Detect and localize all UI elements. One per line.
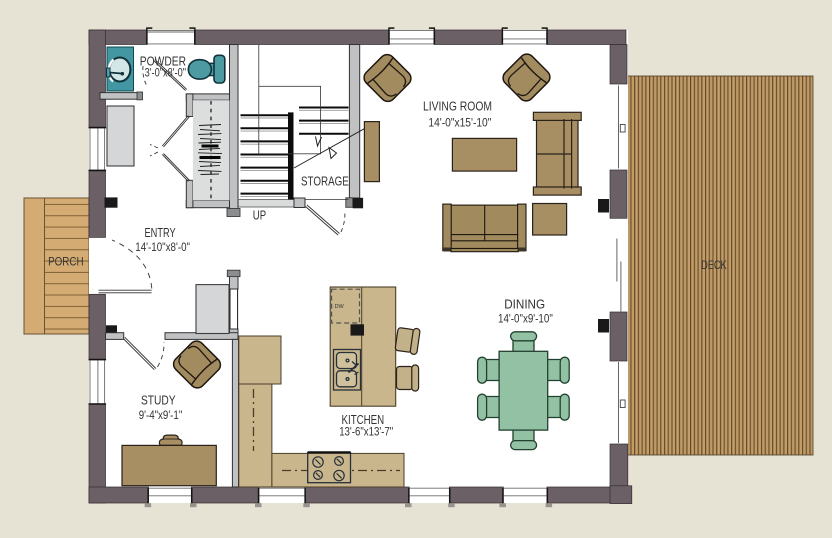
svg-text:PORCH: PORCH [48, 257, 84, 269]
svg-text:STUDY: STUDY [141, 393, 176, 408]
svg-text:14'-0"x9'-10": 14'-0"x9'-10" [498, 311, 553, 325]
svg-text:DECK: DECK [701, 260, 727, 272]
svg-text:14'-10"x8'-0": 14'-10"x8'-0" [135, 240, 190, 254]
svg-text:13'-6"x13'-7": 13'-6"x13'-7" [339, 425, 393, 439]
svg-text:ENTRY: ENTRY [145, 225, 176, 240]
svg-text:14'-0"x15'-10": 14'-0"x15'-10" [428, 115, 491, 129]
svg-text:DW: DW [335, 304, 345, 310]
svg-text:STORAGE: STORAGE [301, 174, 349, 189]
svg-text:LIVING ROOM: LIVING ROOM [423, 99, 492, 114]
svg-text:DINING: DINING [504, 297, 545, 312]
svg-text:9'-4"x9'-1": 9'-4"x9'-1" [139, 408, 183, 422]
svg-text:UP: UP [253, 208, 266, 223]
svg-text:3'-0"x8'-0": 3'-0"x8'-0" [145, 66, 186, 80]
